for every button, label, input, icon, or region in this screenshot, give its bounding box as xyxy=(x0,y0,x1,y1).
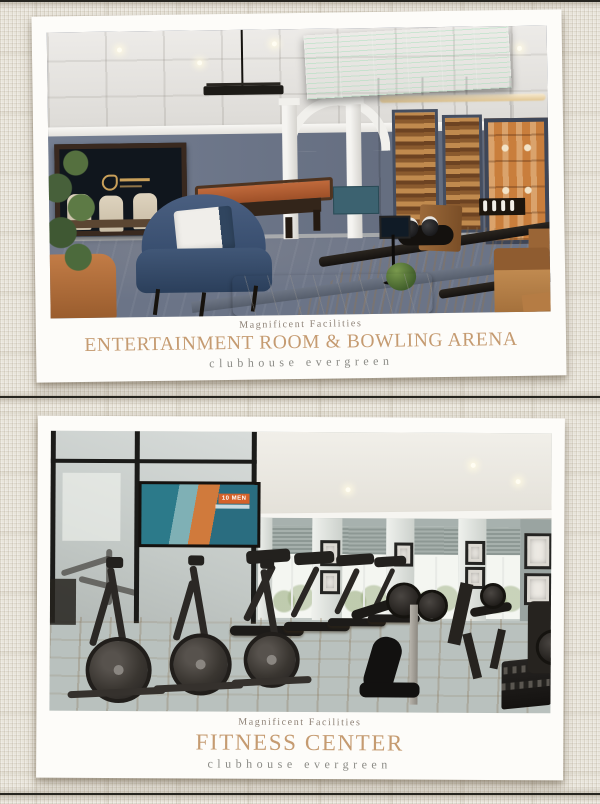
mirror-reflection xyxy=(62,473,120,541)
bowling-pin xyxy=(492,200,496,211)
elliptical-console xyxy=(260,560,274,569)
weight-plate xyxy=(416,590,448,622)
entertainment-photo xyxy=(47,26,551,319)
mirror-reflection xyxy=(60,555,111,577)
chandelier xyxy=(203,85,283,95)
machine-partial xyxy=(50,579,76,625)
elliptical-console xyxy=(106,557,123,568)
marble-coffee-table xyxy=(232,273,433,316)
linen-background: Magnificent Facilities ENTERTAINMENT ROO… xyxy=(0,0,600,804)
framed-photo xyxy=(465,541,485,565)
dumbbell-row xyxy=(502,679,550,691)
bowling-pin xyxy=(501,200,505,211)
window-shade xyxy=(414,527,458,555)
window-shade xyxy=(342,526,386,554)
framed-photo xyxy=(320,570,340,594)
elliptical-console xyxy=(188,555,204,565)
tv-logo-line xyxy=(120,185,142,187)
fitness-photo: 10 MEN xyxy=(49,431,551,714)
bowling-scoreboard xyxy=(303,26,511,100)
gym-tv: 10 MEN xyxy=(138,481,260,548)
weight-plate xyxy=(480,583,506,609)
bowling-ball xyxy=(421,216,438,236)
ceiling-light xyxy=(517,46,522,51)
bowling-pin xyxy=(483,200,487,211)
leather-bench xyxy=(522,292,551,313)
subtitle-text: clubhouse evergreen xyxy=(36,756,563,774)
window-shade xyxy=(486,527,520,555)
middle-seam-line xyxy=(0,396,600,398)
eyebrow-text: Magnificent Facilities xyxy=(36,716,563,730)
fitness-card: 10 MEN xyxy=(36,416,565,781)
framed-photo xyxy=(524,533,552,569)
ceiling-light xyxy=(197,60,202,65)
ceiling-light xyxy=(471,463,476,468)
pool-table-leg xyxy=(285,217,292,238)
teal-sideboard xyxy=(333,186,379,215)
ceiling-light xyxy=(272,41,277,46)
bottom-seam-line xyxy=(0,793,600,795)
treadmill-console xyxy=(374,555,407,567)
tv-logo-line xyxy=(120,178,150,181)
mirror-frame xyxy=(51,459,257,464)
treadmill-console xyxy=(294,551,335,566)
ceiling-light xyxy=(516,479,521,484)
entertainment-card: Magnificent Facilities ENTERTAINMENT ROO… xyxy=(31,9,566,382)
ceiling-light xyxy=(117,47,122,52)
entertainment-caption: Magnificent Facilities ENTERTAINMENT ROO… xyxy=(36,315,567,373)
window xyxy=(272,526,312,618)
tv-ad-bar xyxy=(215,505,249,509)
tv-logo-emblem xyxy=(102,175,118,191)
ceiling-light xyxy=(346,487,351,492)
bowling-pin xyxy=(510,200,514,211)
leather-bench-back xyxy=(494,248,550,273)
pool-table-leg xyxy=(313,210,320,231)
gym-tv-screen: 10 MEN xyxy=(141,484,257,545)
bench-seat-pad xyxy=(359,682,419,697)
score-console-screen xyxy=(379,215,410,238)
potted-plant xyxy=(47,148,102,273)
tv-ad-label: 10 MEN xyxy=(219,494,250,504)
fitness-caption: Magnificent Facilities FITNESS CENTER cl… xyxy=(36,716,563,774)
card-title: FITNESS CENTER xyxy=(36,729,563,758)
white-column xyxy=(346,104,363,238)
top-seam-line xyxy=(0,0,600,2)
